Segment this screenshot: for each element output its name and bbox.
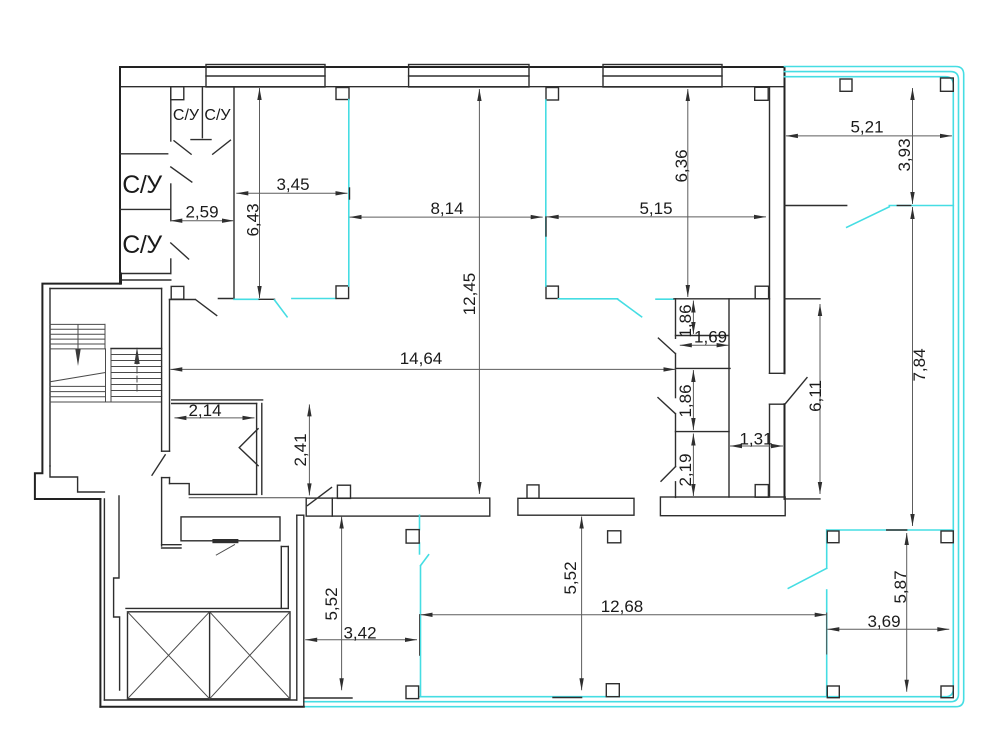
svg-text:6,43: 6,43 — [244, 203, 263, 236]
svg-text:1,31: 1,31 — [739, 430, 772, 449]
svg-text:5,52: 5,52 — [322, 587, 341, 620]
svg-text:1,69: 1,69 — [694, 328, 727, 347]
svg-text:5,52: 5,52 — [561, 561, 580, 594]
svg-text:С/У: С/У — [204, 107, 231, 124]
svg-text:14,64: 14,64 — [400, 349, 443, 368]
svg-text:3,69: 3,69 — [867, 612, 900, 631]
svg-text:С/У: С/У — [122, 231, 162, 259]
svg-text:С/У: С/У — [122, 171, 162, 199]
svg-text:3,45: 3,45 — [276, 175, 309, 194]
svg-text:5,87: 5,87 — [891, 570, 910, 603]
svg-text:2,14: 2,14 — [188, 401, 221, 420]
svg-text:2,41: 2,41 — [291, 433, 310, 466]
svg-text:1,86: 1,86 — [676, 384, 695, 417]
svg-text:2,59: 2,59 — [185, 203, 218, 222]
svg-text:5,21: 5,21 — [850, 118, 883, 137]
svg-text:5,15: 5,15 — [639, 199, 672, 218]
svg-text:6,11: 6,11 — [806, 380, 825, 412]
svg-text:12,68: 12,68 — [601, 597, 644, 616]
svg-text:2,19: 2,19 — [676, 453, 695, 486]
svg-text:С/У: С/У — [173, 107, 200, 124]
svg-text:12,45: 12,45 — [460, 273, 479, 316]
svg-text:3,42: 3,42 — [343, 624, 376, 643]
svg-text:7,84: 7,84 — [910, 348, 929, 381]
svg-text:1,86: 1,86 — [676, 304, 695, 337]
svg-text:8,14: 8,14 — [430, 199, 463, 218]
svg-text:3,93: 3,93 — [895, 138, 914, 171]
svg-text:6,36: 6,36 — [672, 149, 691, 182]
